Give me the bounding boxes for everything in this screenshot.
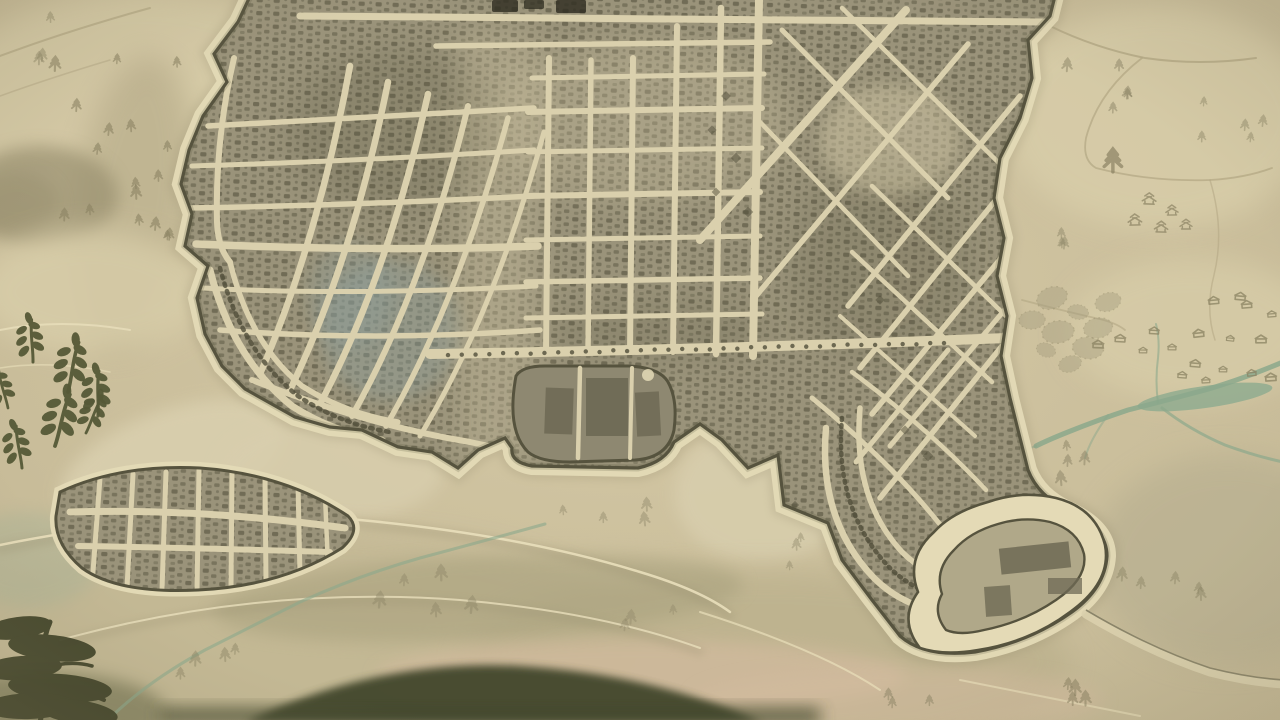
vignette-overlay — [0, 0, 1280, 720]
map-svg — [0, 0, 1280, 720]
antique-map-canvas[interactable] — [0, 0, 1280, 720]
